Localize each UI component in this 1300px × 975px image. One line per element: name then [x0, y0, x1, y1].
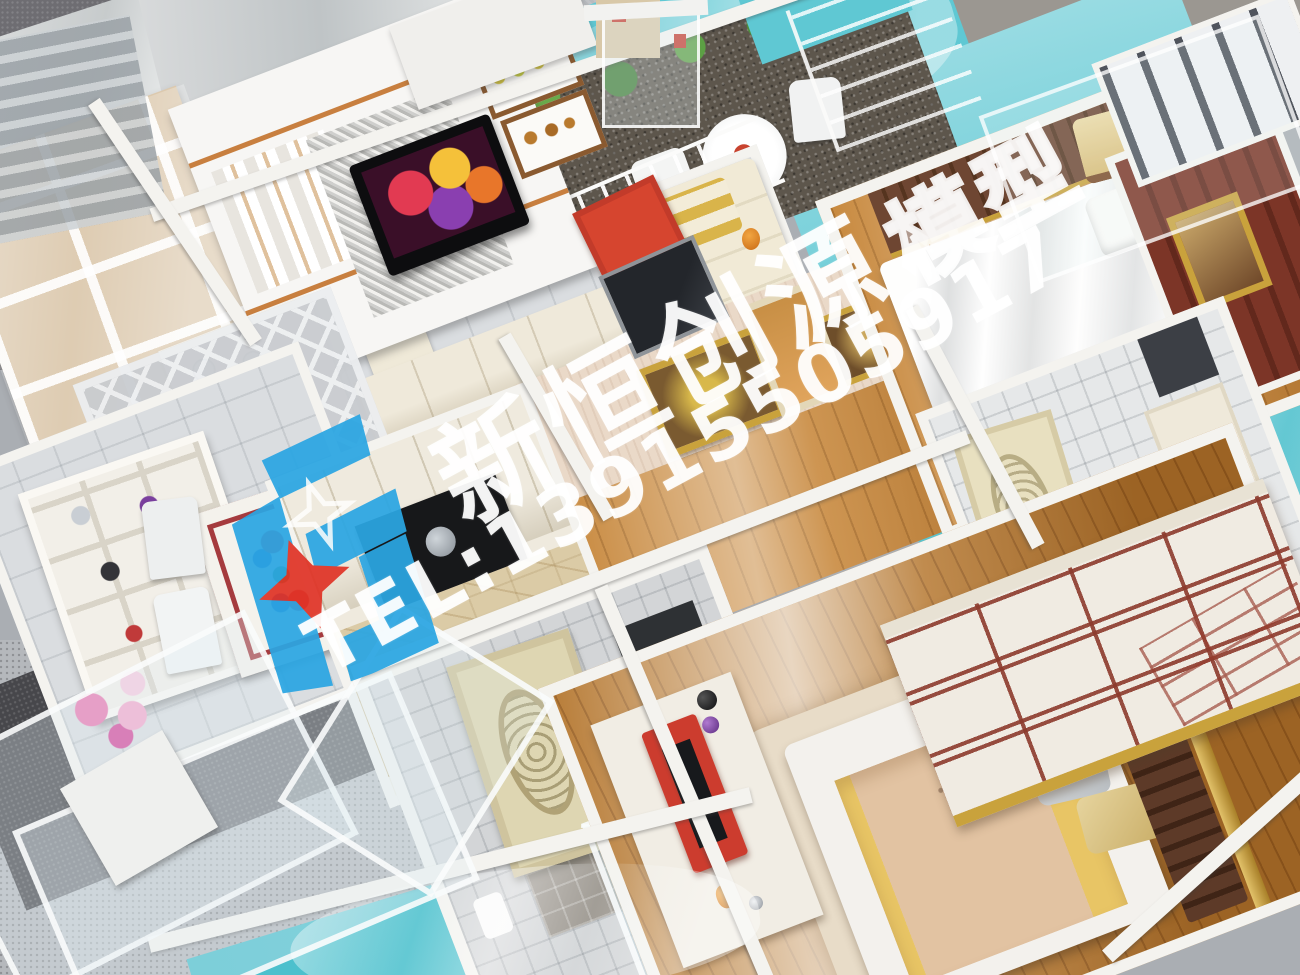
decor-ball-purple: [700, 714, 722, 736]
decor-ball-black: [694, 687, 720, 713]
acrylic-display-column: [602, 10, 700, 128]
photo-of-apartment-scale-model: 新恒创源模型 TEL:13915505917: [0, 0, 1300, 975]
bath-niche-dark: [1137, 317, 1219, 398]
dining-chair: [141, 496, 206, 580]
